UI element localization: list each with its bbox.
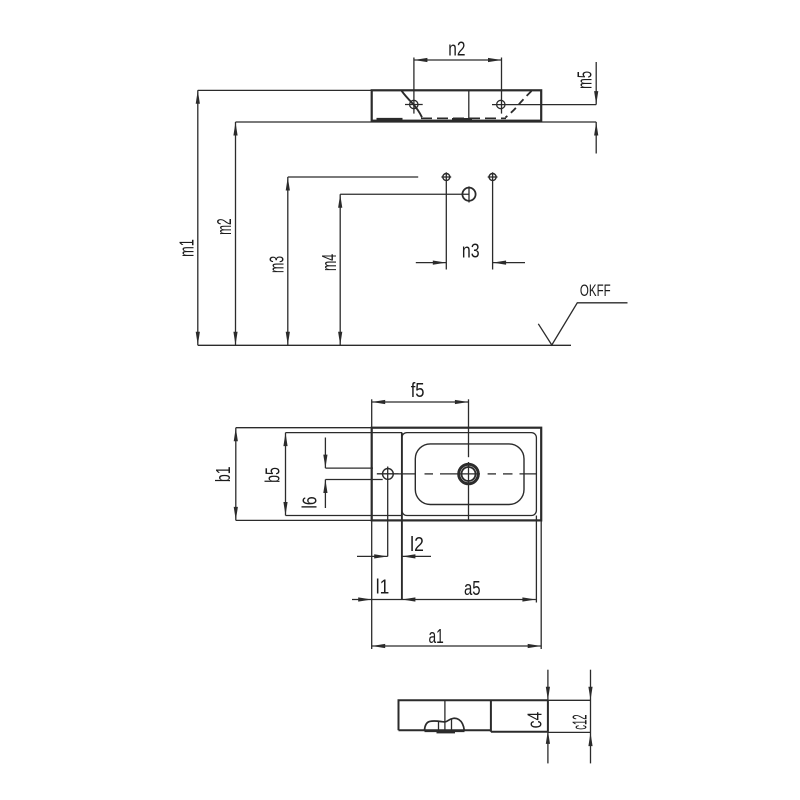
svg-text:a5: a5 [464, 577, 481, 600]
svg-text:b1: b1 [212, 466, 235, 482]
svg-text:OKFF: OKFF [580, 282, 611, 301]
svg-text:b5: b5 [261, 467, 284, 483]
svg-text:l2: l2 [410, 534, 424, 556]
svg-text:l6: l6 [299, 496, 321, 508]
svg-text:m5: m5 [574, 71, 597, 89]
svg-text:m3: m3 [265, 256, 288, 273]
svg-text:c12: c12 [570, 714, 592, 729]
svg-text:a1: a1 [428, 624, 443, 647]
svg-text:m4: m4 [318, 254, 341, 271]
svg-text:m1: m1 [176, 239, 199, 257]
svg-text:l1: l1 [376, 575, 390, 598]
svg-text:c4: c4 [524, 712, 546, 729]
svg-text:n2: n2 [448, 38, 465, 60]
svg-text:m2: m2 [213, 218, 236, 235]
svg-text:f5: f5 [411, 379, 425, 402]
svg-text:n3: n3 [462, 240, 480, 262]
